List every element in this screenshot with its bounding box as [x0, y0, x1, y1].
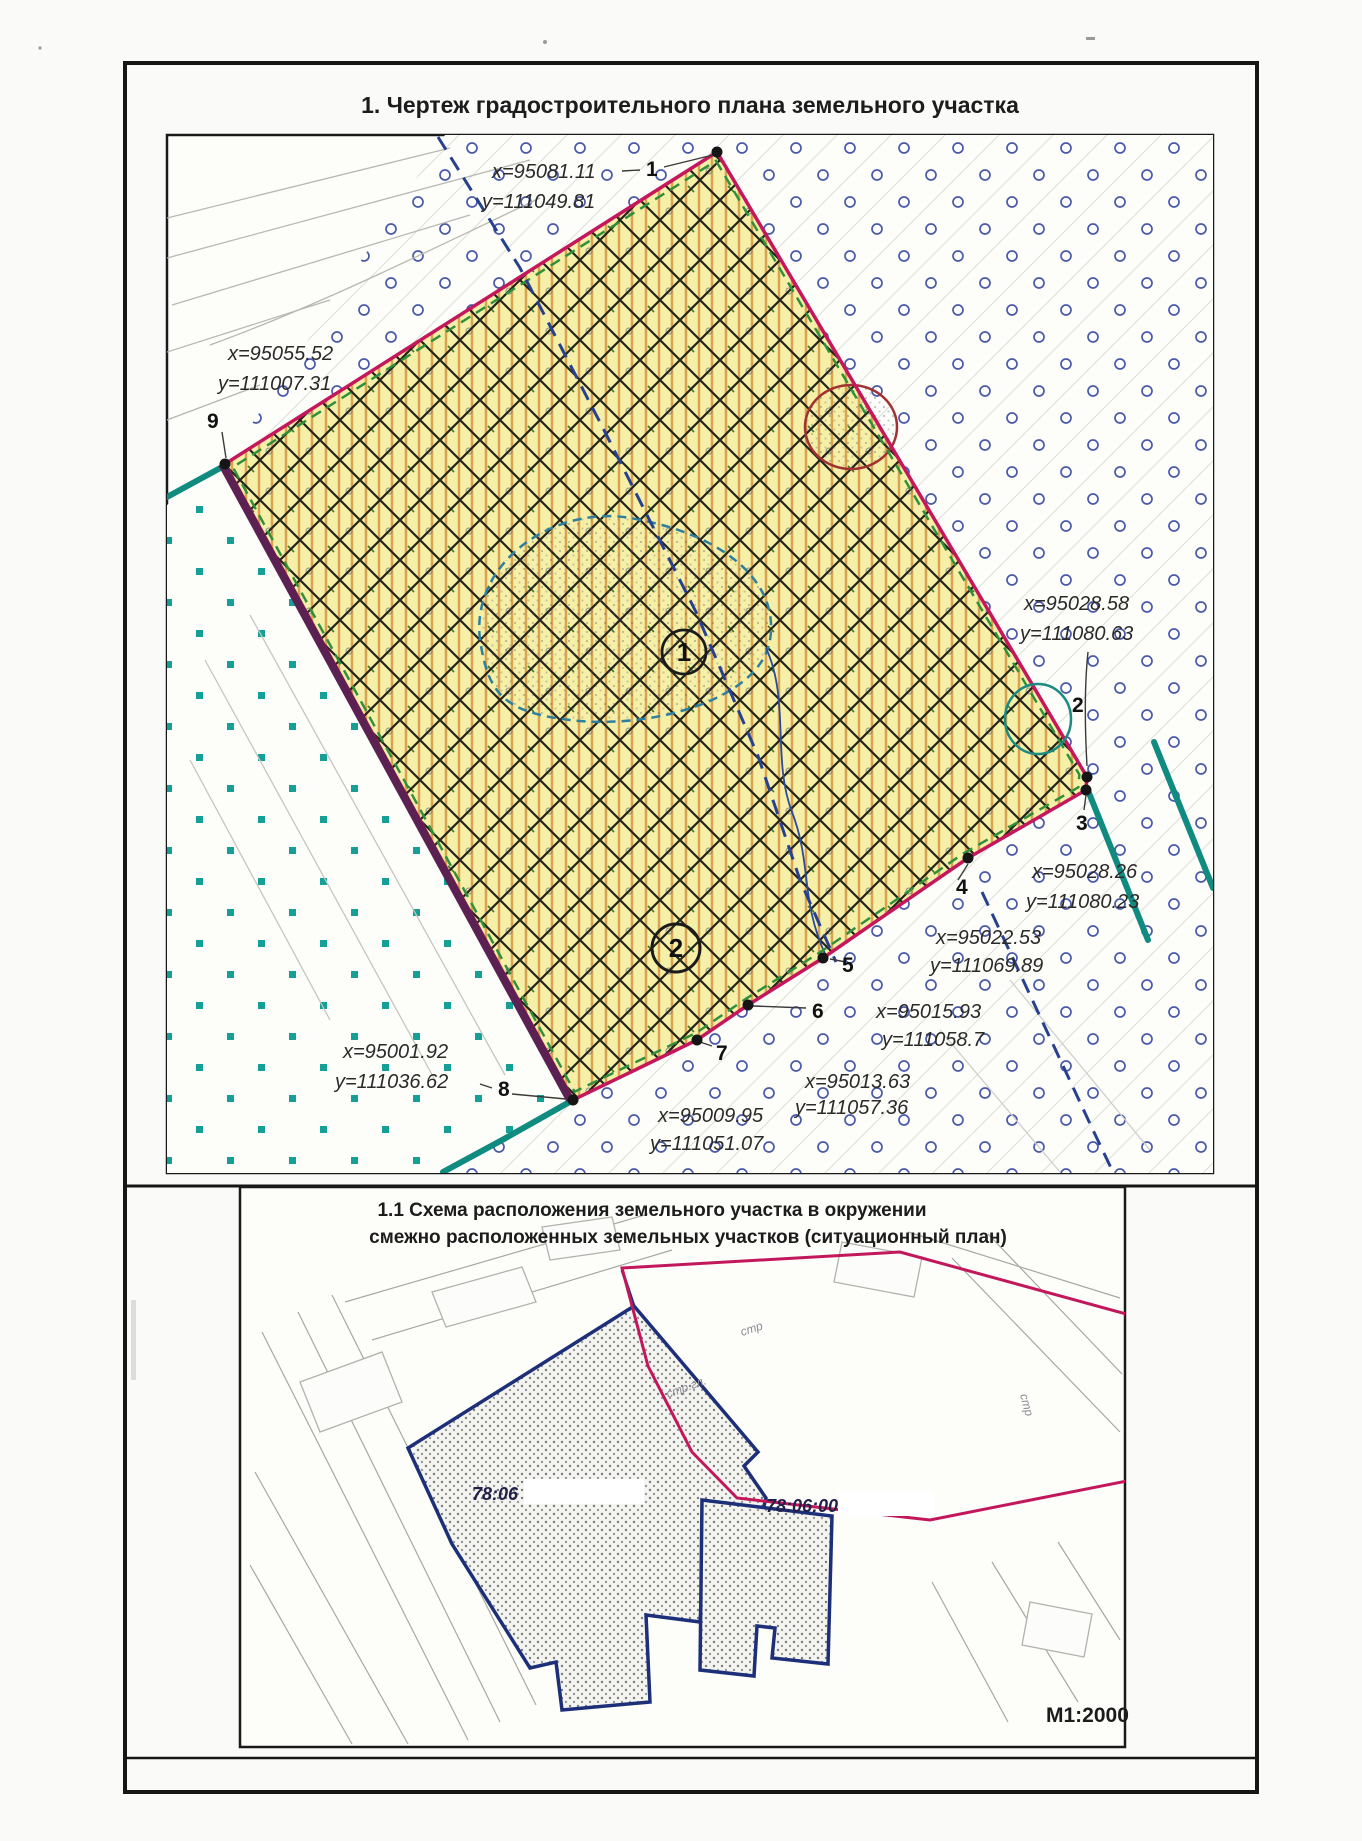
document-scan: 1. Чертеж градостроительного плана земел… — [0, 0, 1362, 1841]
situational-title-line-1: 1.1 Схема расположения земельного участк… — [377, 1200, 926, 1221]
point-1-x: x=95081.11 — [491, 161, 596, 183]
point-6-number: 6 — [812, 1000, 824, 1023]
main-plan-title: 1. Чертеж градостроительного плана земел… — [361, 92, 1019, 118]
redaction-box-1 — [524, 1479, 644, 1504]
point-3-x: x=95028.26 — [1031, 861, 1138, 883]
redaction-box-2 — [838, 1491, 934, 1516]
point-9-y: y=111007.31 — [216, 373, 331, 395]
point-9-number: 9 — [207, 410, 219, 433]
point-8-number: 8 — [498, 1078, 510, 1101]
point-1-y: y=111049.81 — [480, 191, 595, 213]
zone-1-number: 1 — [677, 637, 691, 667]
red-zone-circle — [805, 385, 897, 469]
point-7-number: 7 — [716, 1042, 728, 1065]
point-2-y: y=111080.63 — [1018, 623, 1133, 645]
point-9-x: x=95055.52 — [227, 343, 333, 365]
point-2-number: 2 — [1072, 694, 1084, 717]
point-2-x: x=95028.58 — [1023, 593, 1129, 615]
cadastral-label-1: 78:06 — [472, 1484, 519, 1504]
point-6-y: y=111057.36 — [793, 1097, 909, 1119]
main-plan-map: x=95081.11 y=111049.81 1 x=95028.58 y=11… — [167, 135, 1213, 1173]
point-8-y: y=111036.62 — [333, 1071, 448, 1093]
point-5-y: y=111058.7 — [880, 1029, 985, 1051]
situational-title-line-2: смежно расположенных земельных участков … — [369, 1227, 1007, 1248]
point-6-x: x=95013.63 — [804, 1071, 910, 1093]
point-3-number: 3 — [1076, 812, 1088, 835]
scanned-document-page: 1. Чертеж градостроительного плана земел… — [0, 0, 1362, 1841]
situational-plan-map: стр стр.гл. стр 78:06 78:06:00 1.1 Схема… — [240, 1187, 1142, 1747]
point-5-number: 5 — [842, 954, 854, 977]
point-4-number: 4 — [956, 876, 968, 899]
scale-label: М1:2000 — [1046, 1704, 1129, 1727]
point-7-x: x=95009.95 — [657, 1105, 764, 1127]
point-4-y: y=111069.89 — [928, 955, 1043, 977]
point-8-x: x=95001.92 — [342, 1041, 448, 1063]
point-7-y: y=111051.07 — [648, 1133, 764, 1155]
point-4-x: x=95022.53 — [935, 927, 1041, 949]
point-1-number: 1 — [646, 158, 658, 181]
point-3-y: y=111080.23 — [1024, 891, 1139, 913]
zone-2-number: 2 — [669, 933, 683, 963]
cadastral-label-2: 78:06:00 — [766, 1496, 838, 1516]
point-5-x: x=95015.93 — [875, 1001, 981, 1023]
